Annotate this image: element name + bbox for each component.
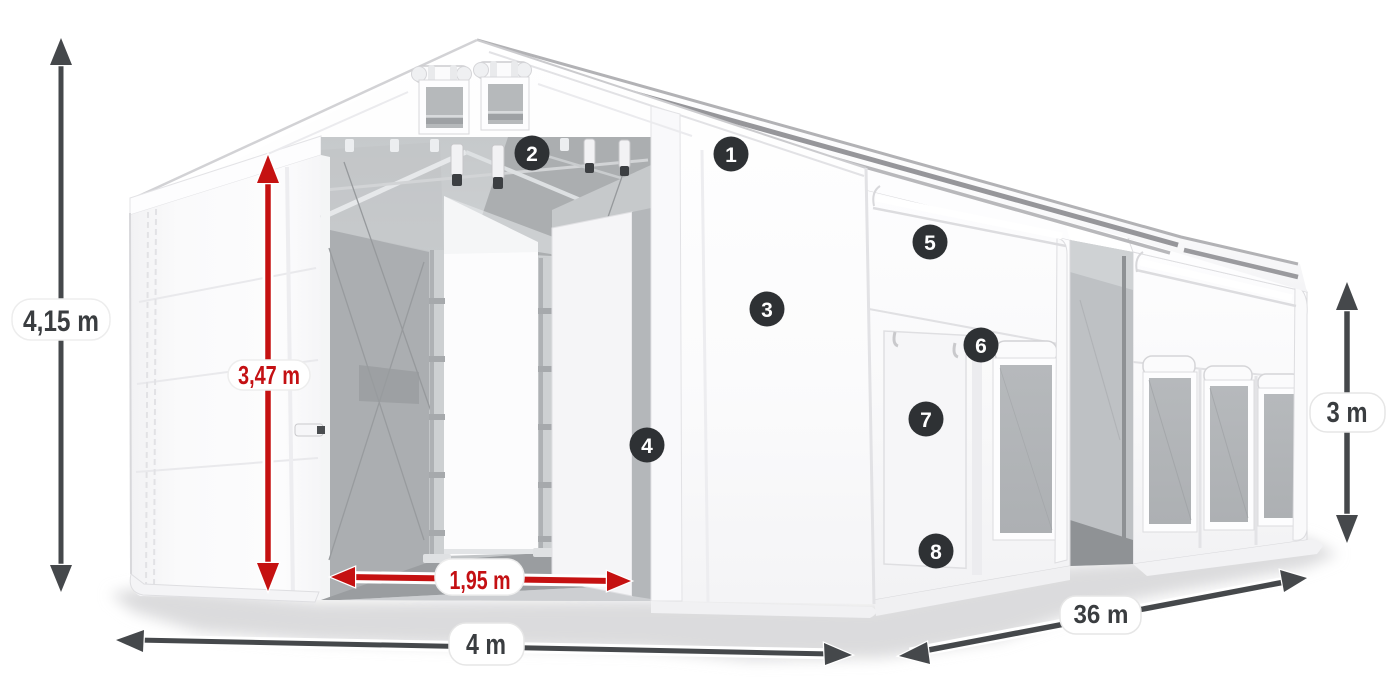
svg-text:1,95 m: 1,95 m	[450, 565, 511, 595]
svg-text:3 m: 3 m	[1327, 397, 1368, 429]
svg-text:6: 6	[975, 335, 987, 358]
svg-text:4 m: 4 m	[466, 629, 506, 661]
svg-text:1: 1	[725, 144, 737, 167]
svg-text:8: 8	[930, 541, 942, 564]
svg-text:3,47 m: 3,47 m	[238, 360, 300, 390]
svg-text:7: 7	[920, 409, 932, 432]
svg-text:4,15 m: 4,15 m	[23, 305, 99, 338]
svg-text:2: 2	[526, 143, 538, 166]
svg-text:36 m: 36 m	[1074, 599, 1129, 629]
svg-text:5: 5	[924, 232, 936, 255]
svg-text:4: 4	[641, 435, 653, 458]
svg-text:3: 3	[761, 299, 773, 322]
